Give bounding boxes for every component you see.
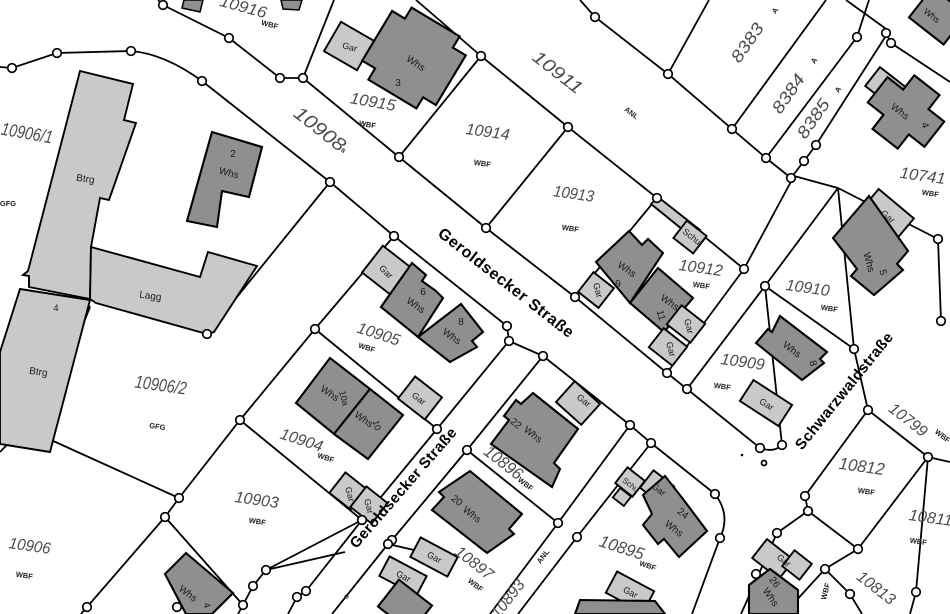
svg-text:8: 8 xyxy=(458,317,464,328)
svg-text:3: 3 xyxy=(395,78,401,89)
svg-text:6: 6 xyxy=(420,287,426,298)
svg-text:9: 9 xyxy=(615,279,621,290)
svg-text:GFG: GFG xyxy=(0,199,16,208)
svg-text:2: 2 xyxy=(230,149,236,160)
svg-text:4: 4 xyxy=(53,303,58,313)
